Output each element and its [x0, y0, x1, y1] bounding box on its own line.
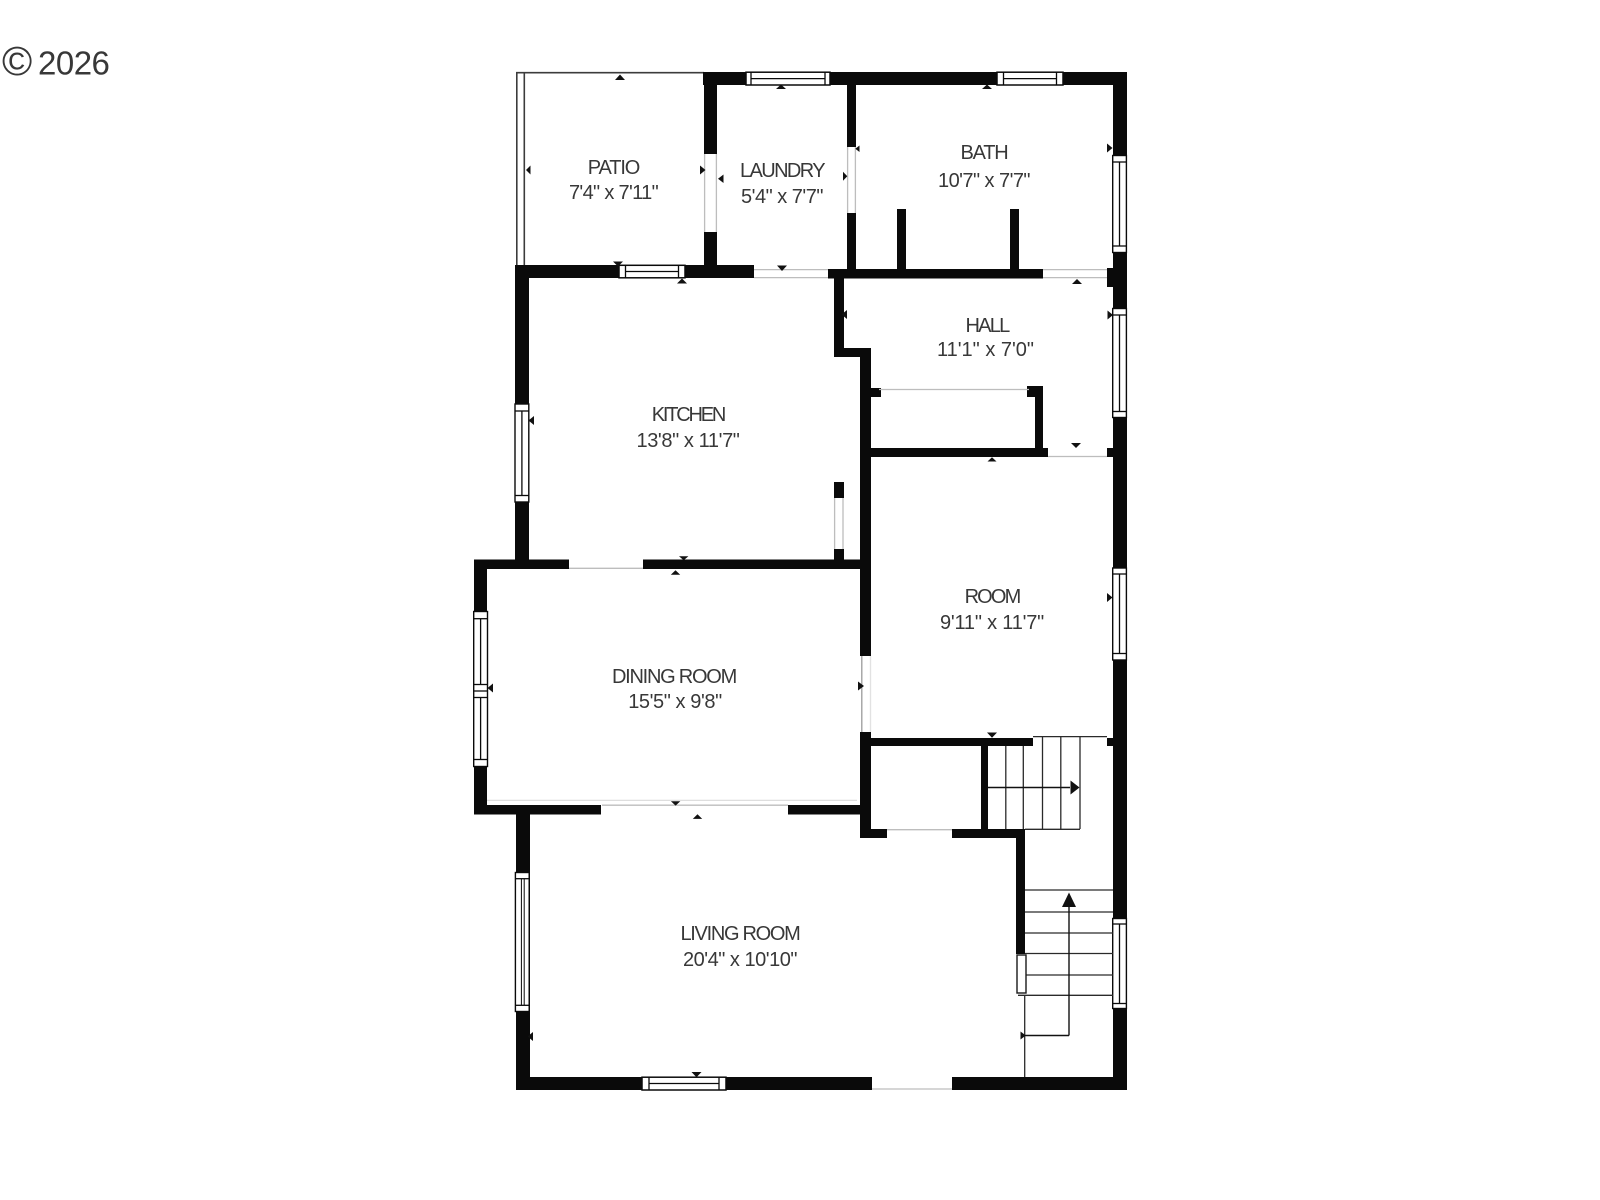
svg-text:LAUNDRY: LAUNDRY [740, 160, 825, 182]
svg-text:DINING ROOM: DINING ROOM [612, 666, 737, 688]
svg-text:7'4" x 7'11": 7'4" x 7'11" [569, 182, 659, 204]
svg-text:BATH: BATH [960, 142, 1007, 164]
svg-text:15'5" x 9'8": 15'5" x 9'8" [628, 691, 722, 713]
svg-text:5'4" x 7'7": 5'4" x 7'7" [741, 186, 823, 208]
svg-text:10'7" x 7'7": 10'7" x 7'7" [938, 170, 1030, 192]
svg-text:©: © [2, 38, 32, 84]
svg-text:HALL: HALL [965, 315, 1010, 337]
svg-text:LIVING ROOM: LIVING ROOM [680, 923, 800, 945]
svg-text:11'1" x 7'0": 11'1" x 7'0" [937, 339, 1034, 361]
svg-text:PATIO: PATIO [588, 157, 640, 179]
svg-text:KITCHEN: KITCHEN [652, 404, 725, 426]
svg-text:20'4" x 10'10": 20'4" x 10'10" [683, 949, 797, 971]
svg-text:13'8" x 11'7": 13'8" x 11'7" [636, 430, 739, 452]
svg-text:2026: 2026 [38, 45, 109, 82]
svg-text:9'11" x 11'7": 9'11" x 11'7" [940, 612, 1044, 634]
svg-text:ROOM: ROOM [965, 586, 1021, 608]
